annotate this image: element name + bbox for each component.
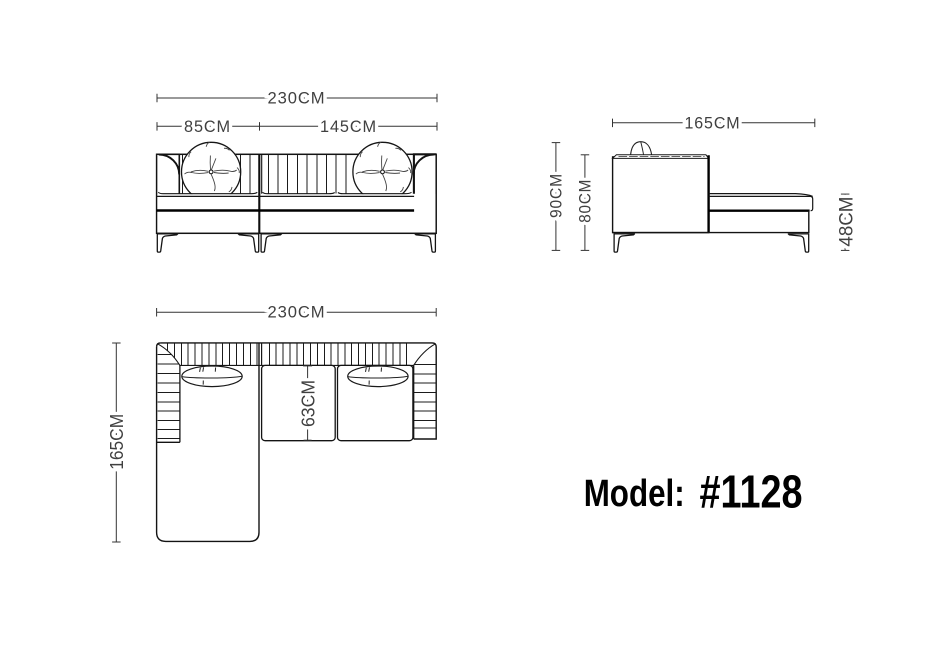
svg-text:80CM: 80CM xyxy=(577,179,595,223)
svg-text:#1128: #1128 xyxy=(700,465,803,517)
svg-text:63CM: 63CM xyxy=(297,380,318,427)
svg-text:230CM: 230CM xyxy=(268,304,326,322)
svg-text:165CM: 165CM xyxy=(106,414,127,470)
svg-text:145CM: 145CM xyxy=(320,118,377,136)
svg-text:48CM: 48CM xyxy=(836,197,857,247)
svg-text:85CM: 85CM xyxy=(184,118,231,136)
svg-text:90CM: 90CM xyxy=(548,173,566,218)
svg-text:230CM: 230CM xyxy=(268,90,326,108)
svg-text:Model:: Model: xyxy=(584,473,685,515)
svg-text:165CM: 165CM xyxy=(685,114,741,132)
